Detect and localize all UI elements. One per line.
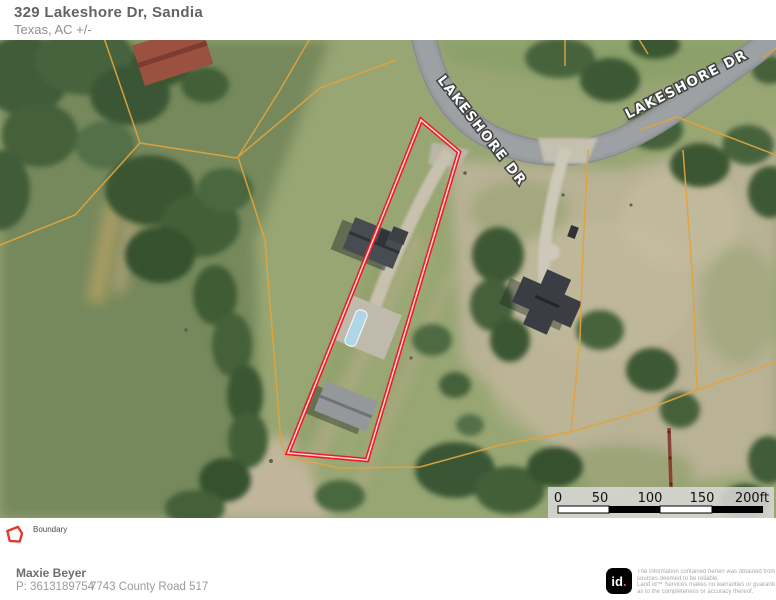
aerial-map-canvas: LAKESHORE DR LAKESHORE DR 0 50 100 150 2… (0, 40, 776, 518)
scale-label-200ft: 200ft (735, 491, 769, 506)
land-id-logo-dot: . (623, 574, 627, 589)
map-header: 329 Lakeshore Dr, Sandia Texas, AC +/- (0, 0, 776, 40)
scale-label-50: 50 (592, 491, 609, 506)
land-id-logo-text: id (611, 574, 623, 589)
aerial-map: LAKESHORE DR LAKESHORE DR 0 50 100 150 2… (0, 40, 776, 518)
scale-bar: 0 50 100 150 200ft (548, 487, 774, 518)
property-subtitle: Texas, AC +/- (14, 22, 92, 37)
legend-item-boundary: Boundary (5, 525, 67, 534)
scale-label-0: 0 (554, 491, 562, 506)
footer: Maxie Beyer P: 3613189754 7743 County Ro… (0, 560, 776, 600)
boundary-polygon-icon (5, 525, 25, 544)
disclaimer-text: The information contained herein was obt… (637, 569, 775, 595)
owner-address: 7743 County Road 517 (90, 581, 208, 593)
owner-phone: P: 3613189754 (16, 581, 94, 593)
scale-label-100: 100 (638, 491, 663, 506)
disclaimer-line: The information contained herein was obt… (637, 569, 775, 576)
scale-label-150: 150 (690, 491, 715, 506)
owner-name: Maxie Beyer (16, 566, 86, 580)
legend: Boundary (0, 518, 776, 560)
disclaimer-line: Land id™ Services makes no warranties or… (637, 582, 775, 589)
legend-item-label: Boundary (33, 525, 67, 534)
property-title: 329 Lakeshore Dr, Sandia (14, 4, 203, 21)
disclaimer-line: as to the completeness or accuracy there… (637, 589, 775, 596)
land-id-logo: id. (606, 568, 632, 594)
